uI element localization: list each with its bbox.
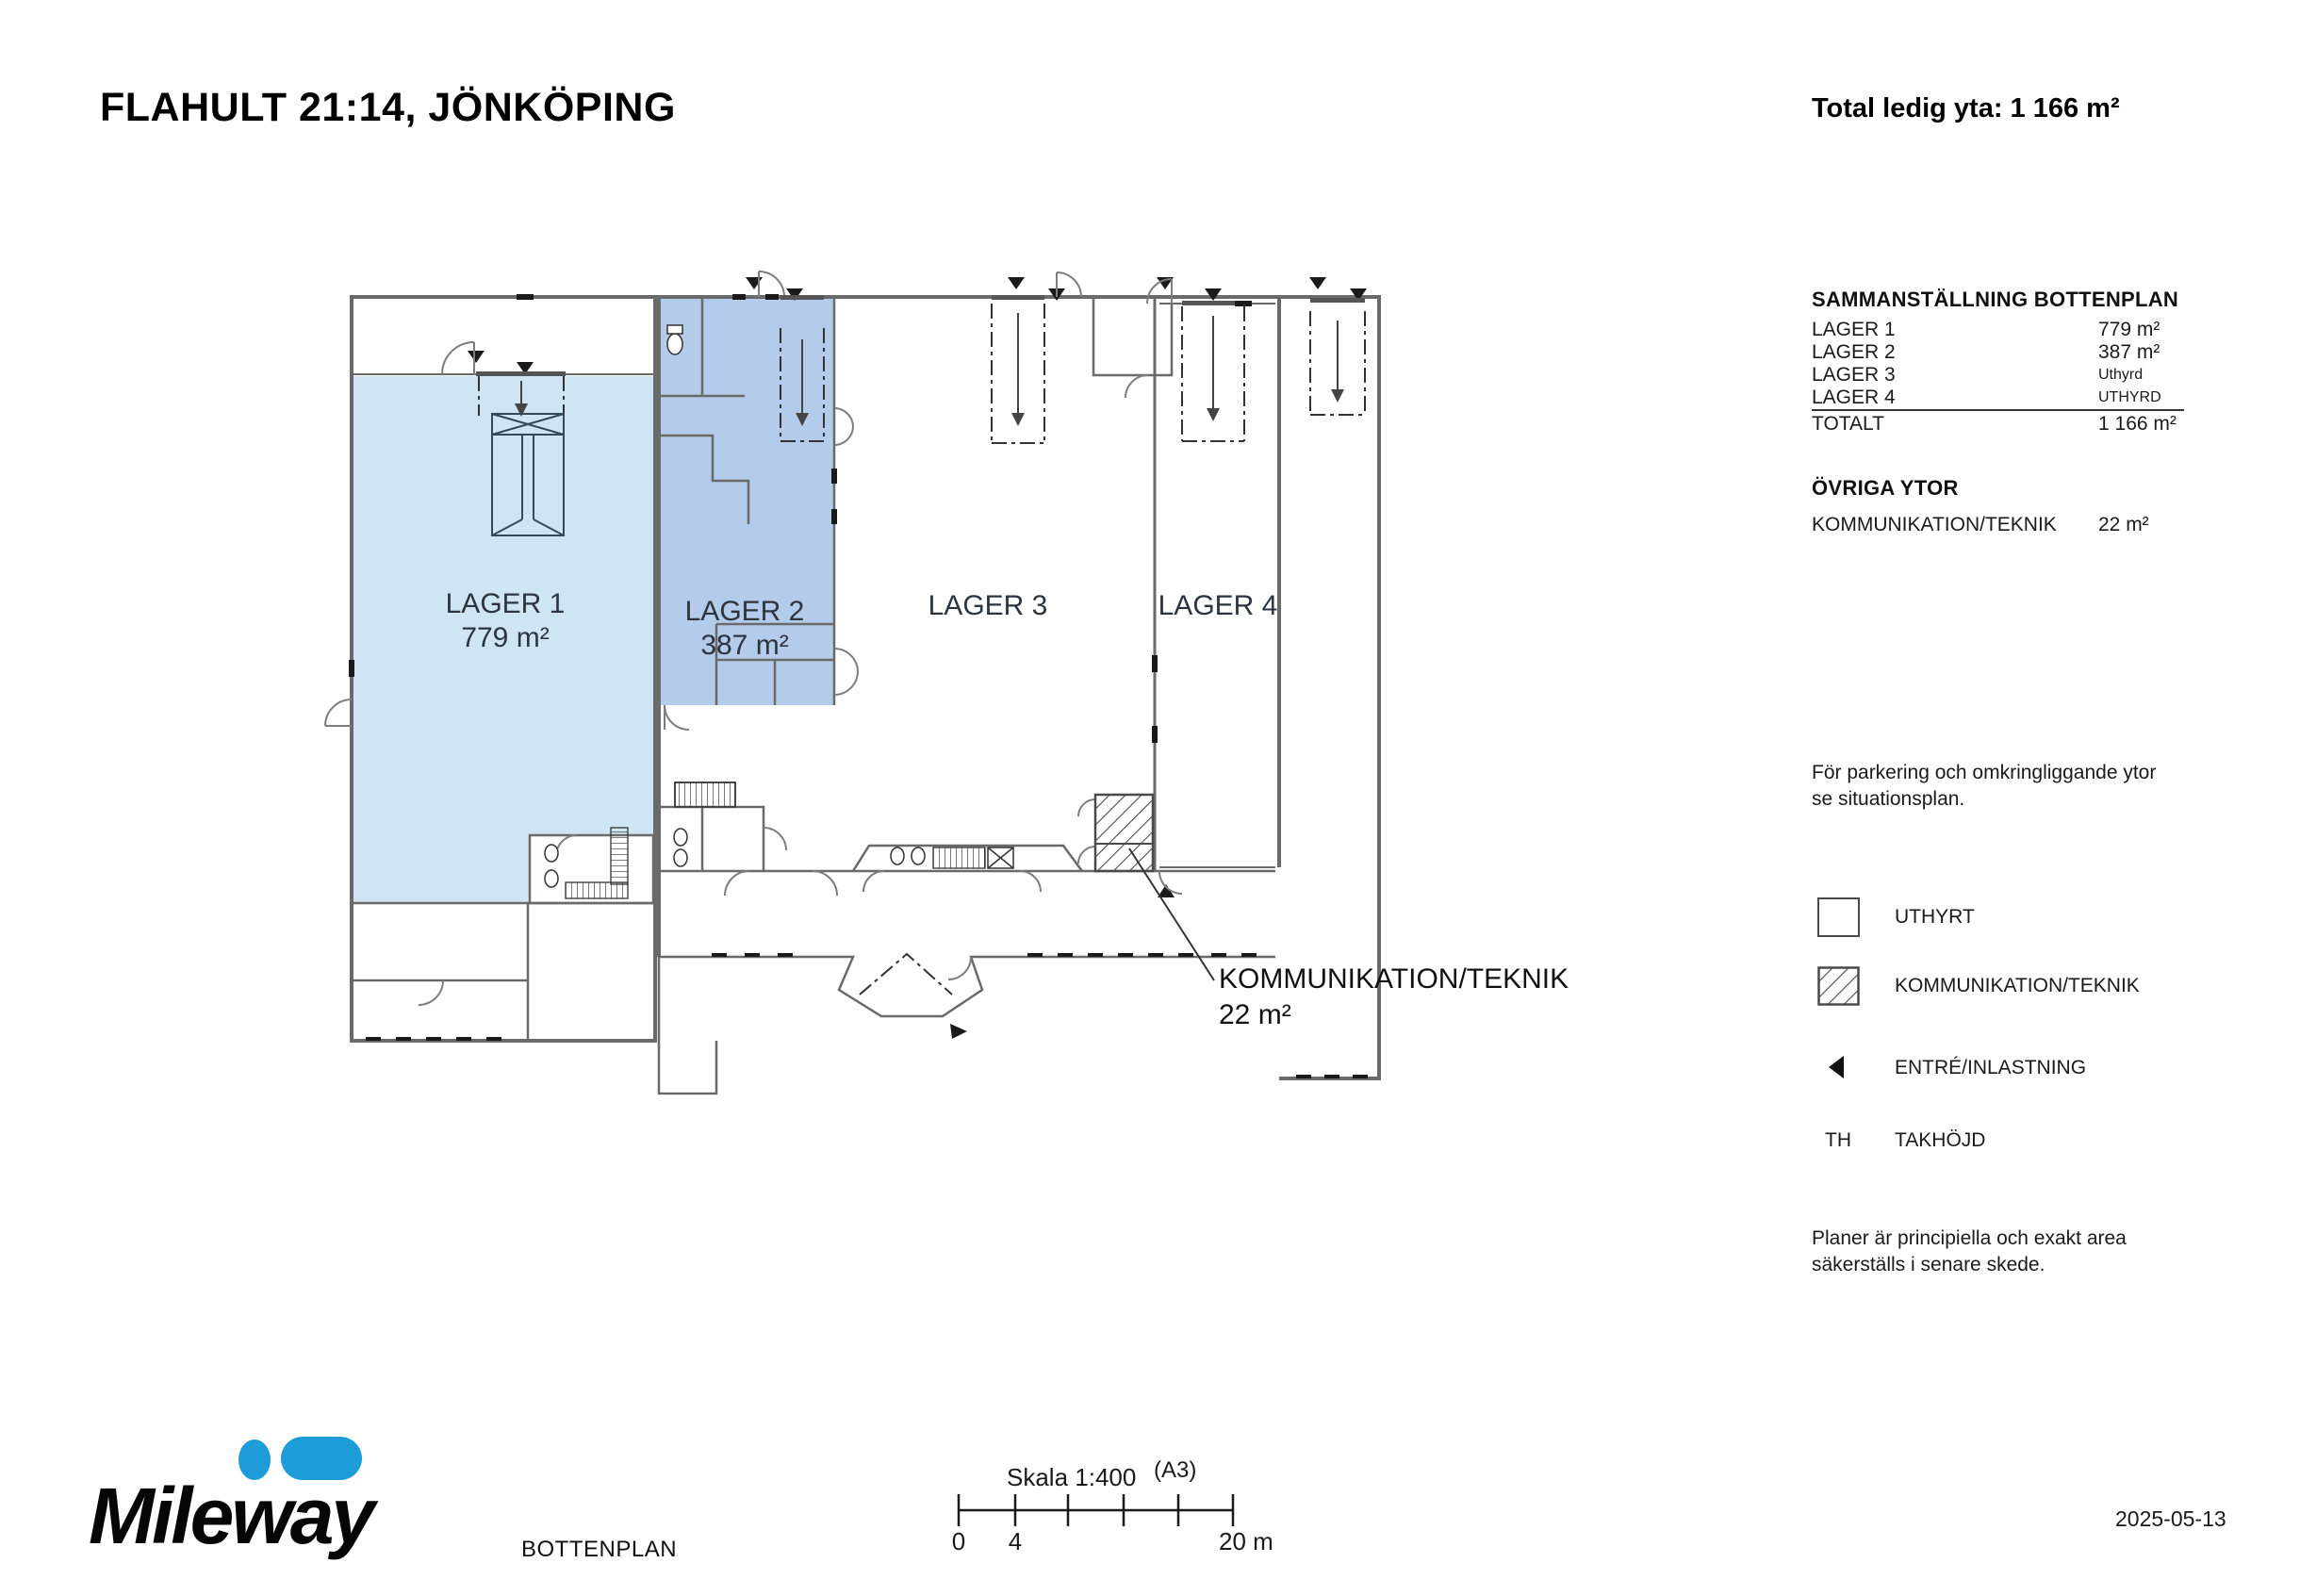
- legend-th-abbr: TH: [1825, 1129, 1851, 1152]
- table-row: LAGER 4 UTHYRD: [1812, 387, 2184, 411]
- disclaimer-note: Planer är principiella och exakt area sä…: [1812, 1226, 2137, 1277]
- mileway-logo: Mileway: [89, 1471, 372, 1562]
- lager2-label: LAGER 2: [685, 596, 805, 627]
- total-value: 1 166 m²: [2098, 413, 2177, 436]
- lager3-label: LAGER 3: [928, 590, 1048, 621]
- table-row: LAGER 1 779 m²: [1812, 319, 2184, 341]
- row-label: LAGER 3: [1812, 364, 1896, 386]
- mileway-logo-pill: [281, 1437, 362, 1480]
- parking-note: För parkering och omkringliggande ytor s…: [1812, 760, 2179, 812]
- row-value: 779 m²: [2098, 319, 2160, 341]
- row-value: 387 m²: [2098, 341, 2160, 364]
- scale-tick-0: 0: [952, 1527, 965, 1555]
- row-label: LAGER 4: [1812, 387, 1896, 408]
- table-row: LAGER 3 Uthyrd: [1812, 364, 2184, 387]
- lager1-area: 779 m²: [461, 622, 549, 653]
- scale-tick-4: 4: [1009, 1527, 1022, 1555]
- summary-table: LAGER 1 779 m² LAGER 2 387 m² LAGER 3 Ut…: [1812, 319, 2184, 436]
- row-value: UTHYRD: [2098, 389, 2161, 406]
- legend-teknik-swatch: [1817, 966, 1860, 1006]
- teknik-annotation: KOMMUNIKATION/TEKNIK 22 m²: [1219, 963, 1569, 1030]
- teknik-area: 22 m²: [1219, 999, 1291, 1030]
- paper-size: (A3): [1154, 1457, 1196, 1484]
- table-total-row: TOTALT 1 166 m²: [1812, 413, 2184, 436]
- legend-uthyrt-label: UTHYRT: [1895, 906, 1975, 929]
- legend-uthyrt-swatch: [1817, 897, 1860, 937]
- teknik-hatched-area: [1095, 795, 1153, 871]
- row-value: Uthyrd: [2098, 367, 2143, 384]
- scale-text: Skala 1:400: [1007, 1463, 1136, 1492]
- lager2-area: 387 m²: [700, 630, 788, 661]
- legend-teknik-label: KOMMUNIKATION/TEKNIK: [1895, 975, 2140, 997]
- table-row: LAGER 2 387 m²: [1812, 341, 2184, 364]
- lager1-label: LAGER 1: [446, 588, 566, 619]
- other-label: KOMMUNIKATION/TEKNIK: [1812, 514, 2057, 535]
- summary-heading: SAMMANSTÄLLNING BOTTENPLAN: [1812, 288, 2178, 312]
- other-areas-heading: ÖVRIGA YTOR: [1812, 476, 1959, 501]
- legend-entre-label: ENTRÉ/INLASTNING: [1895, 1057, 2086, 1079]
- other-areas-row: KOMMUNIKATION/TEKNIK 22 m²: [1812, 514, 2184, 536]
- row-label: LAGER 2: [1812, 341, 1896, 363]
- scale-bar: 0 4 20 m: [947, 1489, 1306, 1555]
- other-value: 22 m²: [2098, 514, 2149, 536]
- row-label: LAGER 1: [1812, 319, 1896, 340]
- mileway-logo-dot: [238, 1440, 271, 1480]
- teknik-label: KOMMUNIKATION/TEKNIK: [1219, 963, 1569, 995]
- legend-entre-icon: [1825, 1054, 1848, 1080]
- drawing-date: 2025-05-13: [2115, 1506, 2226, 1532]
- legend-takhojd-label: TAKHÖJD: [1895, 1129, 1985, 1152]
- lager4-label: LAGER 4: [1158, 590, 1278, 621]
- drawing-name: BOTTENPLAN: [521, 1537, 677, 1563]
- scale-tick-20: 20 m: [1219, 1527, 1273, 1555]
- total-label: TOTALT: [1812, 413, 1884, 435]
